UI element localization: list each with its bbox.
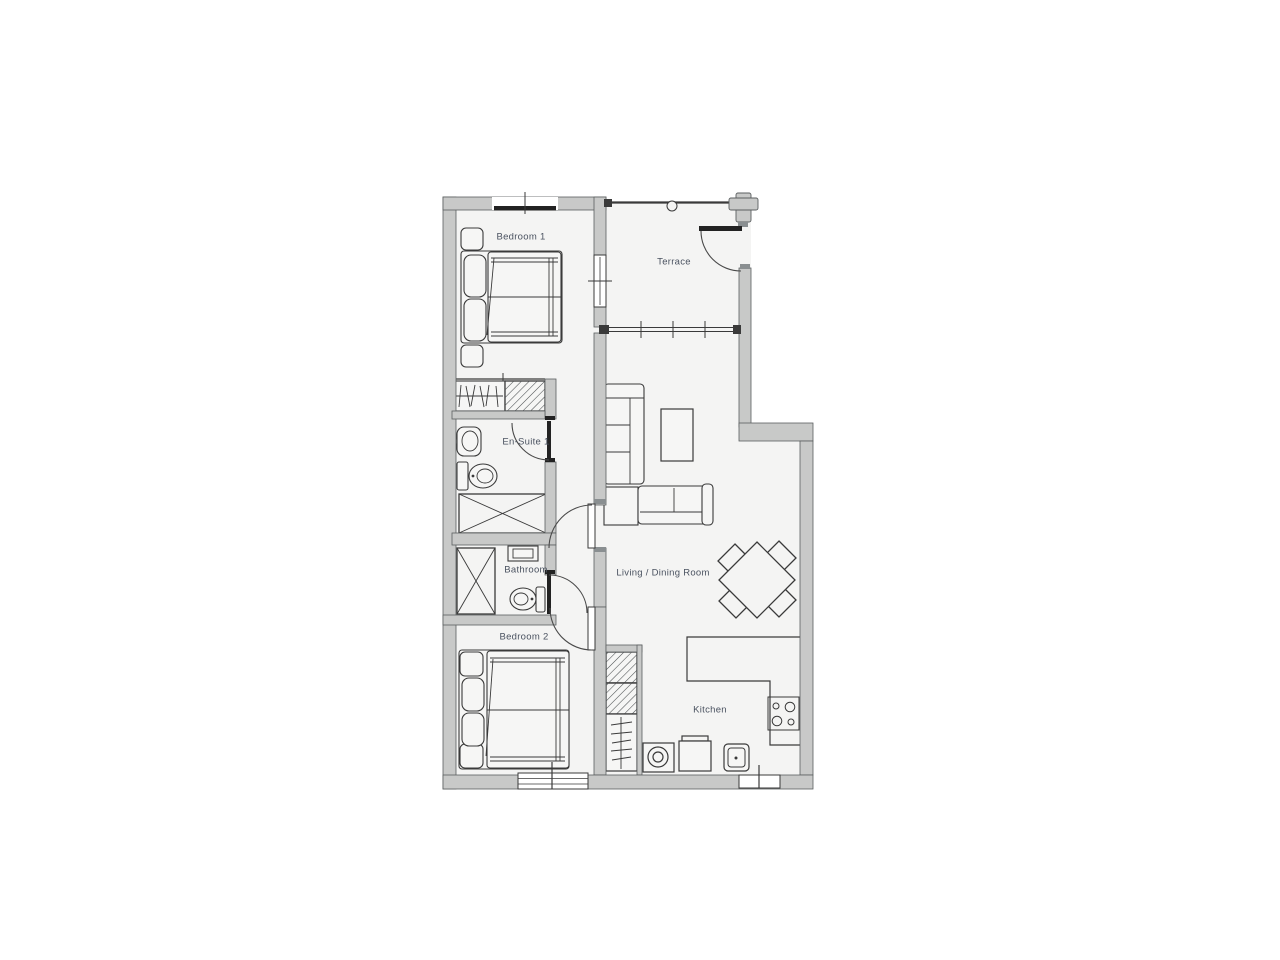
pillow — [464, 255, 486, 297]
pillow — [462, 678, 484, 711]
bathroom-toilet — [510, 587, 545, 612]
room-label-ensuite1: En-Suite 1 — [502, 437, 549, 448]
wall-ensuite-bathroom — [452, 533, 556, 545]
wall-storage-top — [606, 645, 642, 652]
floorplan-page: Bedroom 1 Terrace En-Suite 1 Bathroom Be… — [0, 0, 1280, 960]
hatched-shaft — [505, 381, 545, 411]
dining-set — [718, 541, 796, 618]
pillow — [464, 299, 486, 341]
room-label-bedroom1: Bedroom 1 — [496, 232, 545, 243]
wall-left — [443, 197, 456, 789]
bathroom-basin — [508, 546, 538, 561]
washing-machine — [643, 743, 674, 772]
room-label-living-dining: Living / Dining Room — [616, 568, 709, 579]
coffee-table — [661, 409, 693, 461]
wall-bedroom1-terrace — [594, 307, 606, 327]
ensuite-basin — [456, 427, 481, 456]
kitchen-sink — [724, 744, 749, 771]
bedside-table — [460, 744, 483, 768]
hatched-cupboard — [606, 652, 637, 683]
wall-bedroom2-right — [594, 607, 606, 775]
hatched-cupboard — [606, 683, 637, 714]
pillow — [462, 713, 484, 746]
storage-cupboards — [606, 652, 637, 771]
floorplan-drawing — [0, 0, 1280, 960]
railing-post — [667, 201, 677, 211]
oven — [679, 736, 711, 771]
wall-right — [800, 441, 813, 775]
bedroom2-double-bed — [459, 650, 569, 769]
wall-living-step — [739, 423, 813, 441]
bedside-table — [460, 652, 483, 676]
wall-bathroom-bedroom2 — [443, 615, 556, 625]
bedroom1-wardrobe — [452, 373, 545, 411]
wall-hall-living — [594, 333, 606, 505]
room-label-terrace: Terrace — [657, 257, 691, 268]
wall-ensuite-right — [545, 462, 556, 533]
hall-closet — [606, 714, 637, 771]
wall-wardrobe-bottom — [452, 411, 545, 419]
wall-hall-living — [594, 548, 606, 607]
wall-ensuite-right — [545, 379, 556, 419]
room-label-bedroom2: Bedroom 2 — [499, 632, 548, 643]
bedside-table — [461, 345, 483, 367]
wall-terrace-right — [739, 268, 751, 427]
bedside-table — [461, 228, 483, 250]
ensuite-toilet — [457, 462, 497, 490]
wall-storage-right — [637, 645, 642, 775]
room-label-bathroom: Bathroom — [504, 565, 547, 576]
room-label-kitchen: Kitchen — [693, 705, 727, 716]
